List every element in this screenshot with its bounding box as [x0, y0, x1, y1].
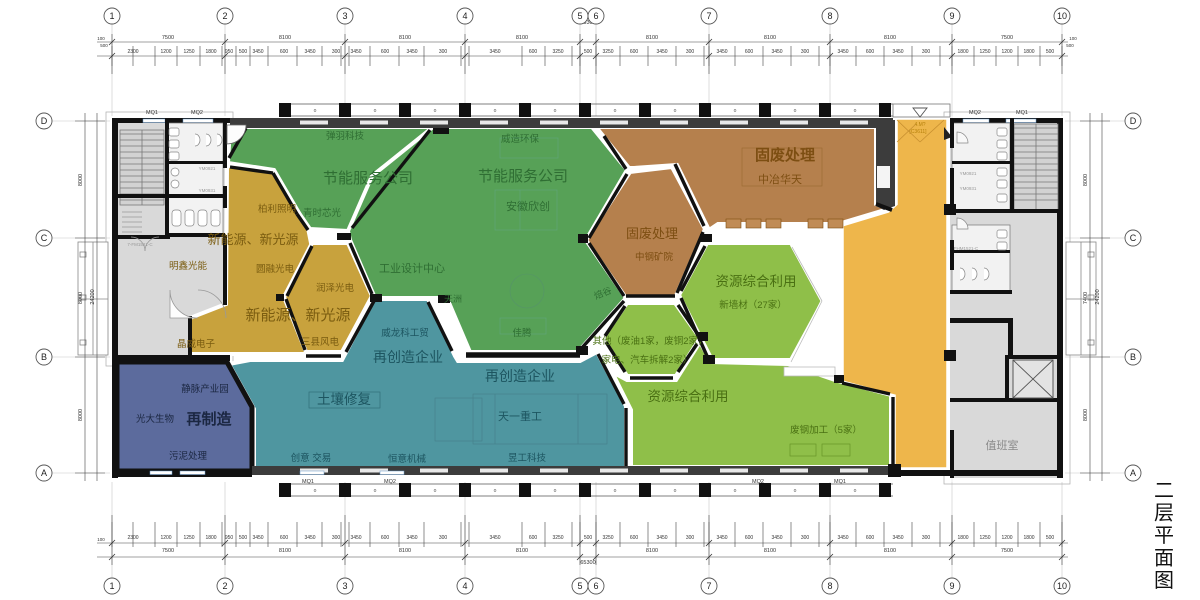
svg-text:600: 600 — [630, 49, 639, 55]
svg-text:8000: 8000 — [78, 174, 84, 186]
svg-text:节能服务公司: 节能服务公司 — [323, 170, 413, 187]
svg-text:威造环保: 威造环保 — [501, 133, 540, 145]
svg-text:1200: 1200 — [160, 49, 171, 55]
svg-text:天洲: 天洲 — [444, 294, 462, 304]
svg-text:500: 500 — [239, 535, 248, 541]
svg-text:10: 10 — [1057, 581, 1067, 591]
svg-text:24200: 24200 — [1095, 289, 1101, 304]
svg-text:1250: 1250 — [183, 49, 194, 55]
svg-text:值班室: 值班室 — [986, 438, 1019, 452]
svg-text:600: 600 — [529, 535, 538, 541]
svg-text:3250: 3250 — [602, 535, 613, 541]
svg-text:o: o — [374, 108, 377, 114]
svg-text:o: o — [854, 488, 857, 494]
svg-text:o: o — [554, 488, 557, 494]
svg-text:D: D — [1130, 116, 1137, 126]
svg-text:平: 平 — [1154, 525, 1174, 547]
svg-text:300: 300 — [801, 49, 810, 55]
svg-text:1800: 1800 — [1023, 535, 1034, 541]
svg-text:8100: 8100 — [764, 548, 776, 554]
svg-text:佳腾: 佳腾 — [512, 327, 532, 339]
svg-text:500: 500 — [1046, 49, 1055, 55]
svg-text:C: C — [1130, 233, 1137, 243]
svg-text:3450: 3450 — [489, 535, 500, 541]
svg-text:固废处理: 固废处理 — [755, 146, 815, 164]
svg-text:3450: 3450 — [837, 49, 848, 55]
svg-text:8100: 8100 — [764, 35, 776, 41]
svg-text:o: o — [314, 488, 317, 494]
svg-text:8: 8 — [827, 11, 832, 21]
svg-text:2300: 2300 — [127, 49, 138, 55]
svg-text:3450: 3450 — [252, 49, 263, 55]
svg-text:o: o — [314, 108, 317, 114]
svg-text:再制造: 再制造 — [186, 410, 231, 428]
svg-text:3450: 3450 — [656, 49, 667, 55]
svg-text:D: D — [41, 116, 48, 126]
svg-text:中钢矿院: 中钢矿院 — [635, 251, 674, 263]
svg-text:图: 图 — [1154, 570, 1174, 592]
svg-text:100: 100 — [97, 537, 105, 542]
svg-text:MQ2: MQ2 — [969, 110, 981, 116]
svg-text:7500: 7500 — [162, 548, 174, 554]
svg-text:600: 600 — [745, 49, 754, 55]
svg-text:资源综合利用: 资源综合利用 — [716, 274, 797, 289]
svg-text:MQ1: MQ1 — [834, 479, 846, 485]
svg-text:安徽欣创: 安徽欣创 — [506, 199, 550, 213]
svg-text:层: 层 — [1154, 503, 1174, 525]
svg-text:3: 3 — [342, 11, 347, 21]
svg-text:3450: 3450 — [771, 535, 782, 541]
svg-text:600: 600 — [866, 535, 875, 541]
svg-text:1250: 1250 — [979, 535, 990, 541]
svg-text:YM0921: YM0921 — [199, 166, 216, 171]
svg-text:MQ1: MQ1 — [146, 110, 158, 116]
svg-text:3450: 3450 — [771, 49, 782, 55]
svg-text:300: 300 — [332, 535, 341, 541]
svg-text:A: A — [41, 468, 47, 478]
svg-text:其他（废油1家，废铜2家，: 其他（废油1家，废铜2家， — [592, 335, 707, 347]
svg-text:o: o — [374, 488, 377, 494]
svg-text:3: 3 — [342, 581, 347, 591]
svg-text:4: 4 — [462, 581, 467, 591]
svg-text:2300: 2300 — [127, 535, 138, 541]
svg-text:500: 500 — [100, 43, 108, 48]
svg-text:固废处理: 固废处理 — [626, 226, 678, 241]
svg-text:8100: 8100 — [279, 35, 291, 41]
svg-text:工业设计中心: 工业设计中心 — [379, 262, 445, 275]
svg-text:3450: 3450 — [716, 49, 727, 55]
svg-text:500: 500 — [1066, 43, 1074, 48]
svg-text:100: 100 — [97, 36, 105, 41]
svg-text:5: 5 — [577, 581, 582, 591]
svg-text:3450: 3450 — [892, 535, 903, 541]
svg-text:3450: 3450 — [656, 535, 667, 541]
svg-text:3450: 3450 — [716, 535, 727, 541]
svg-text:面: 面 — [1154, 548, 1174, 570]
svg-text:24200: 24200 — [90, 289, 96, 304]
svg-text:o: o — [494, 108, 497, 114]
svg-text:100: 100 — [1069, 36, 1077, 41]
svg-text:o: o — [794, 108, 797, 114]
svg-text:600: 600 — [529, 49, 538, 55]
svg-text:600: 600 — [381, 49, 390, 55]
svg-text:8000: 8000 — [78, 292, 84, 304]
svg-text:明鑫光能: 明鑫光能 — [169, 260, 208, 272]
svg-text:500: 500 — [1046, 535, 1055, 541]
svg-text:FHM1521-C: FHM1521-C — [954, 246, 979, 251]
svg-text:家电、汽车拆解2家）: 家电、汽车拆解2家） — [602, 354, 693, 366]
svg-text:7500: 7500 — [1001, 548, 1013, 554]
svg-text:7: 7 — [706, 581, 711, 591]
svg-text:MQ1: MQ1 — [302, 479, 314, 485]
svg-text:3450: 3450 — [892, 49, 903, 55]
svg-text:o: o — [854, 108, 857, 114]
svg-text:1200: 1200 — [1001, 535, 1012, 541]
svg-text:o: o — [674, 108, 677, 114]
svg-text:天一重工: 天一重工 — [498, 409, 542, 423]
svg-text:新墙材（27家）: 新墙材（27家） — [719, 299, 787, 311]
svg-text:500: 500 — [584, 535, 593, 541]
svg-text:600: 600 — [866, 49, 875, 55]
svg-text:8100: 8100 — [399, 35, 411, 41]
svg-text:8100: 8100 — [646, 35, 658, 41]
svg-text:3450: 3450 — [304, 535, 315, 541]
svg-text:950: 950 — [225, 49, 234, 55]
svg-text:o: o — [494, 488, 497, 494]
svg-text:o: o — [794, 488, 797, 494]
svg-text:3450: 3450 — [350, 49, 361, 55]
svg-text:2: 2 — [222, 581, 227, 591]
svg-text:圆融光电: 圆融光电 — [256, 263, 295, 275]
svg-text:3250: 3250 — [602, 49, 613, 55]
svg-text:昱工科技: 昱工科技 — [508, 452, 547, 464]
svg-text:1: 1 — [109, 581, 114, 591]
svg-text:青时芯光: 青时芯光 — [303, 207, 342, 219]
svg-text:晶威电子: 晶威电子 — [177, 338, 216, 350]
svg-text:3450: 3450 — [837, 535, 848, 541]
svg-text:威龙科工贸: 威龙科工贸 — [381, 327, 429, 339]
svg-text:C: C — [41, 233, 48, 243]
svg-text:资源综合利用: 资源综合利用 — [648, 389, 729, 404]
svg-text:中冶华天: 中冶华天 — [758, 172, 802, 186]
svg-text:7: 7 — [706, 11, 711, 21]
svg-text:3450: 3450 — [406, 535, 417, 541]
svg-text:创意 交易: 创意 交易 — [291, 452, 332, 464]
svg-text:A: A — [1130, 468, 1136, 478]
svg-text:600: 600 — [280, 49, 289, 55]
svg-text:300: 300 — [439, 49, 448, 55]
svg-text:3450: 3450 — [304, 49, 315, 55]
svg-text:3450: 3450 — [406, 49, 417, 55]
svg-text:7500: 7500 — [162, 35, 174, 41]
svg-text:2: 2 — [222, 11, 227, 21]
svg-text:8100: 8100 — [516, 548, 528, 554]
svg-text:5: 5 — [577, 11, 582, 21]
svg-text:柏利照明: 柏利照明 — [258, 203, 296, 215]
svg-text:o: o — [734, 488, 737, 494]
svg-text:光大生物: 光大生物 — [136, 413, 175, 425]
svg-text:1: 1 — [109, 11, 114, 21]
svg-text:1250: 1250 — [979, 49, 990, 55]
svg-text:9: 9 — [949, 581, 954, 591]
svg-text:600: 600 — [381, 535, 390, 541]
svg-text:65300: 65300 — [580, 560, 595, 566]
svg-text:MQ2: MQ2 — [384, 479, 396, 485]
svg-text:8000: 8000 — [1083, 174, 1089, 186]
svg-text:600: 600 — [630, 535, 639, 541]
svg-text:B: B — [1130, 352, 1136, 362]
svg-text:YM0931: YM0931 — [199, 188, 216, 193]
svg-text:8000: 8000 — [1083, 409, 1089, 421]
svg-text:300: 300 — [922, 535, 931, 541]
svg-text:8000: 8000 — [78, 409, 84, 421]
svg-text:MQ1: MQ1 — [1016, 110, 1028, 116]
svg-text:4.M?: 4.M? — [914, 122, 925, 128]
svg-text:8100: 8100 — [884, 35, 896, 41]
svg-text:9: 9 — [949, 11, 954, 21]
svg-text:300: 300 — [686, 535, 695, 541]
svg-text:7-FM1521-C: 7-FM1521-C — [127, 242, 153, 247]
svg-text:8100: 8100 — [646, 548, 658, 554]
svg-text:o: o — [674, 488, 677, 494]
svg-text:6: 6 — [593, 11, 598, 21]
svg-text:o: o — [434, 488, 437, 494]
svg-text:300: 300 — [332, 49, 341, 55]
svg-text:10: 10 — [1057, 11, 1067, 21]
svg-text:二: 二 — [1154, 480, 1174, 502]
svg-text:B: B — [41, 352, 47, 362]
svg-text:1800: 1800 — [205, 49, 216, 55]
svg-text:o: o — [734, 108, 737, 114]
svg-text:弹羽科技: 弹羽科技 — [326, 130, 365, 142]
svg-text:3250: 3250 — [552, 49, 563, 55]
svg-text:500: 500 — [584, 49, 593, 55]
svg-text:500: 500 — [239, 49, 248, 55]
svg-text:1200: 1200 — [160, 535, 171, 541]
svg-text:1800: 1800 — [205, 535, 216, 541]
svg-text:300: 300 — [686, 49, 695, 55]
svg-text:MQ2: MQ2 — [752, 479, 764, 485]
svg-text:o: o — [614, 488, 617, 494]
svg-text:600: 600 — [745, 535, 754, 541]
svg-text:三县风电: 三县风电 — [301, 336, 340, 348]
svg-text:300: 300 — [439, 535, 448, 541]
svg-text:1800: 1800 — [957, 49, 968, 55]
svg-text:新能源、新光源: 新能源、新光源 — [207, 232, 298, 247]
svg-text:3450: 3450 — [489, 49, 500, 55]
svg-text:3450: 3450 — [350, 535, 361, 541]
svg-text:8: 8 — [827, 581, 832, 591]
svg-text:土壤修复: 土壤修复 — [317, 391, 371, 407]
svg-text:8100: 8100 — [399, 548, 411, 554]
svg-text:YM0921: YM0921 — [960, 171, 977, 176]
svg-text:静脉产业园: 静脉产业园 — [181, 383, 229, 395]
svg-text:新能源、新光源: 新能源、新光源 — [245, 307, 350, 324]
svg-text:1800: 1800 — [1023, 49, 1034, 55]
svg-text:3250: 3250 — [552, 535, 563, 541]
svg-text:YM0931: YM0931 — [960, 186, 977, 191]
svg-text:再创造企业: 再创造企业 — [485, 368, 555, 384]
svg-text:o: o — [614, 108, 617, 114]
svg-text:6: 6 — [593, 581, 598, 591]
svg-text:7400: 7400 — [1083, 292, 1089, 304]
svg-text:污泥处理: 污泥处理 — [169, 450, 208, 462]
svg-text:3450: 3450 — [252, 535, 263, 541]
svg-text:300: 300 — [922, 49, 931, 55]
svg-text:7500: 7500 — [1001, 35, 1013, 41]
svg-text:再创造企业: 再创造企业 — [373, 349, 443, 365]
svg-text:o: o — [434, 108, 437, 114]
svg-text:600: 600 — [280, 535, 289, 541]
svg-text:润泽光电: 润泽光电 — [316, 282, 355, 294]
svg-text:8100: 8100 — [884, 548, 896, 554]
svg-text:950: 950 — [225, 535, 234, 541]
svg-text:8100: 8100 — [279, 548, 291, 554]
svg-text:恒意机械: 恒意机械 — [388, 453, 427, 465]
svg-text:1250: 1250 — [183, 535, 194, 541]
svg-text:废钢加工（5家）: 废钢加工（5家） — [790, 424, 862, 436]
svg-text:1800: 1800 — [957, 535, 968, 541]
svg-text:300: 300 — [801, 535, 810, 541]
svg-text:o: o — [554, 108, 557, 114]
svg-text:8100: 8100 — [516, 35, 528, 41]
svg-text:4: 4 — [462, 11, 467, 21]
svg-text:1200: 1200 — [1001, 49, 1012, 55]
svg-text:MQ2: MQ2 — [191, 110, 203, 116]
svg-text:节能服务公司: 节能服务公司 — [478, 168, 568, 185]
